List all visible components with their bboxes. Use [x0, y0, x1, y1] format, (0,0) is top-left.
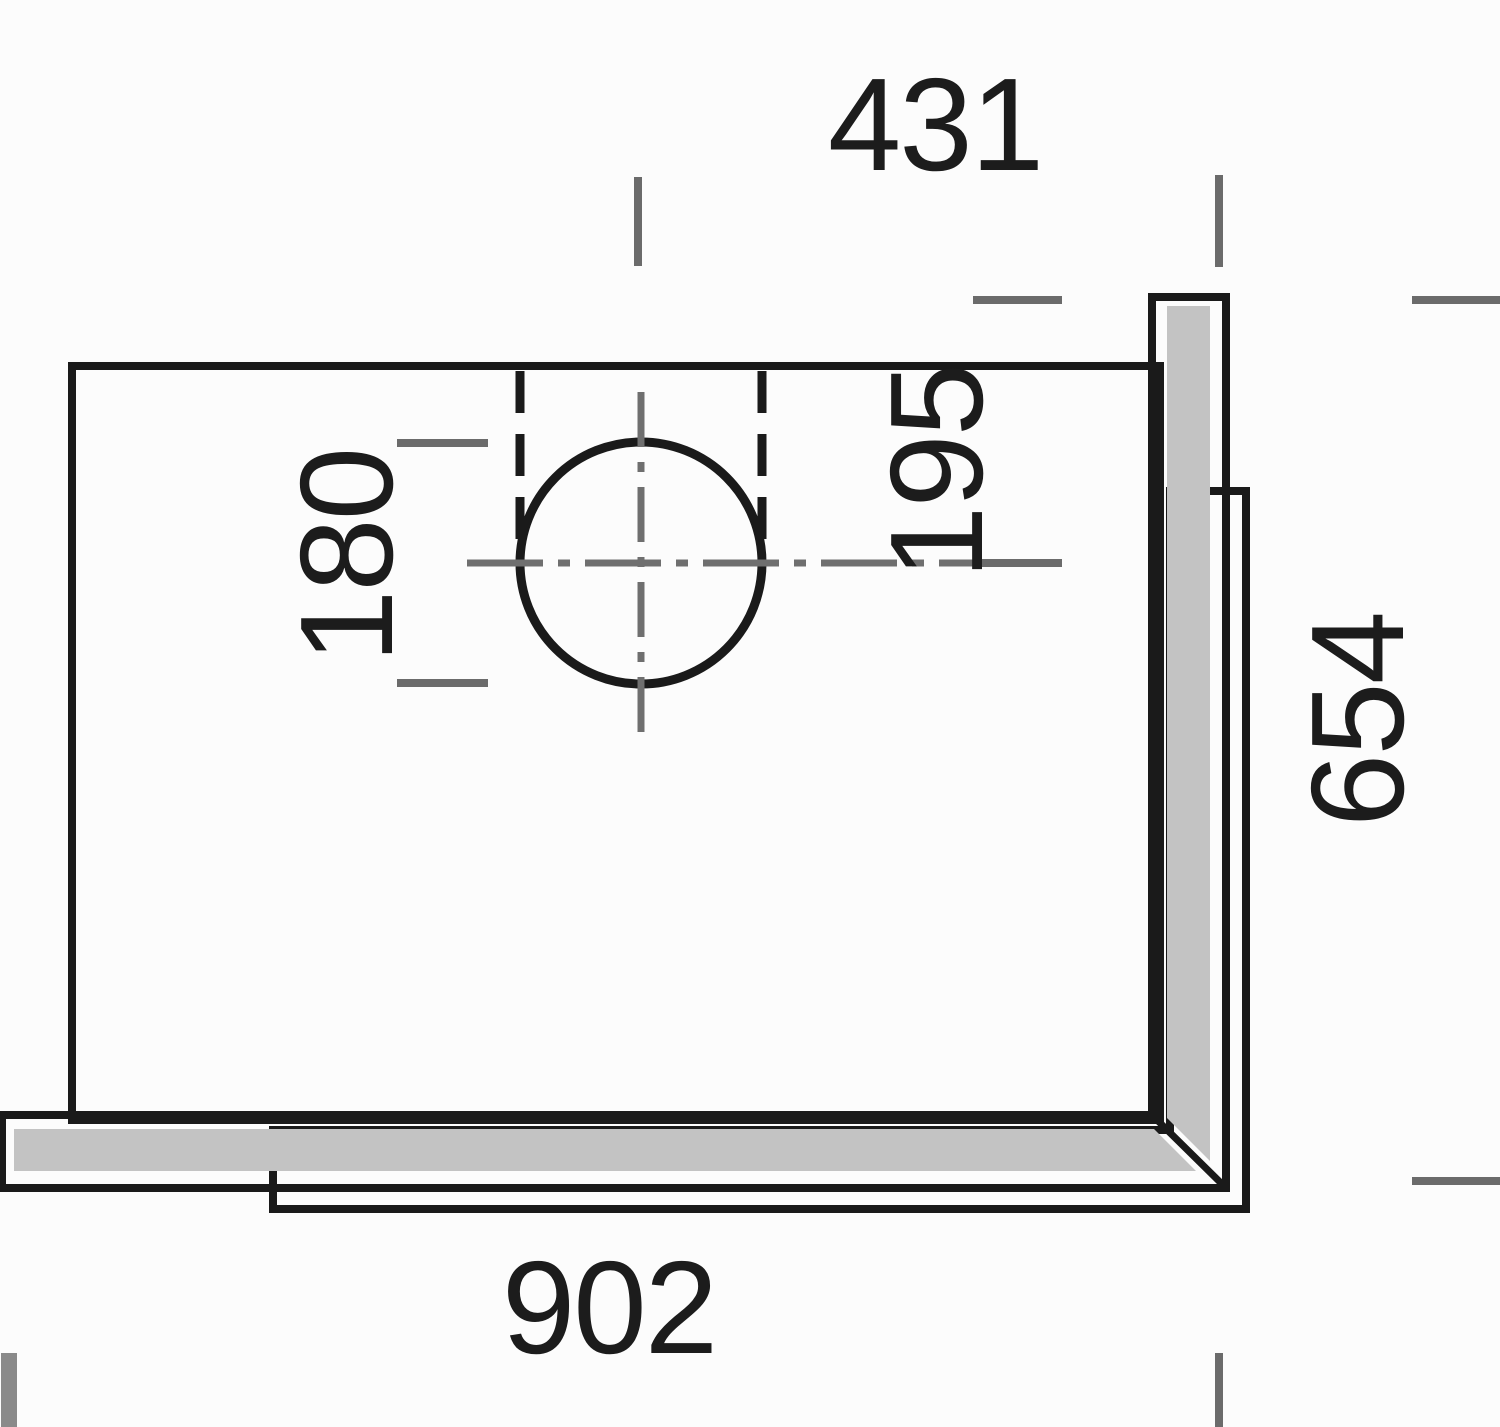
dimension-label-bottom-width: 902: [502, 1242, 716, 1374]
technical-drawing-canvas: 431 195 180 654 902: [0, 0, 1500, 1427]
dimension-drawing: [0, 0, 1500, 1427]
edge-strip-vertical-fill: [1167, 306, 1210, 1161]
dimension-label-hole-offset: 195: [871, 365, 1003, 579]
dimension-label-side-depth: 654: [1292, 613, 1424, 827]
dimension-label-hole-diameter: 180: [281, 449, 413, 663]
dimension-label-top-width: 431: [828, 59, 1042, 191]
edge-strip-horizontal-fill: [14, 1129, 1196, 1171]
